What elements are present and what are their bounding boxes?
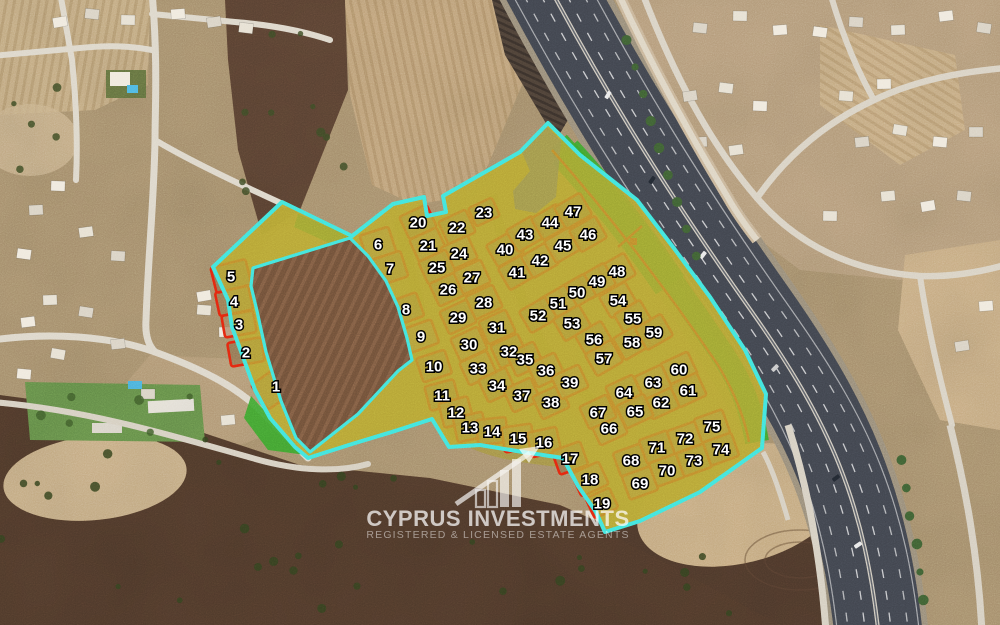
watermark-title: CYPRUS INVESTMENTS: [366, 506, 629, 531]
satellite-map: 1234567891011121314151617181920212223242…: [0, 0, 1000, 625]
satellite-map-screenshot: 1234567891011121314151617181920212223242…: [0, 0, 1000, 625]
watermark-subtitle: REGISTERED & LICENSED ESTATE AGENTS: [366, 529, 629, 541]
